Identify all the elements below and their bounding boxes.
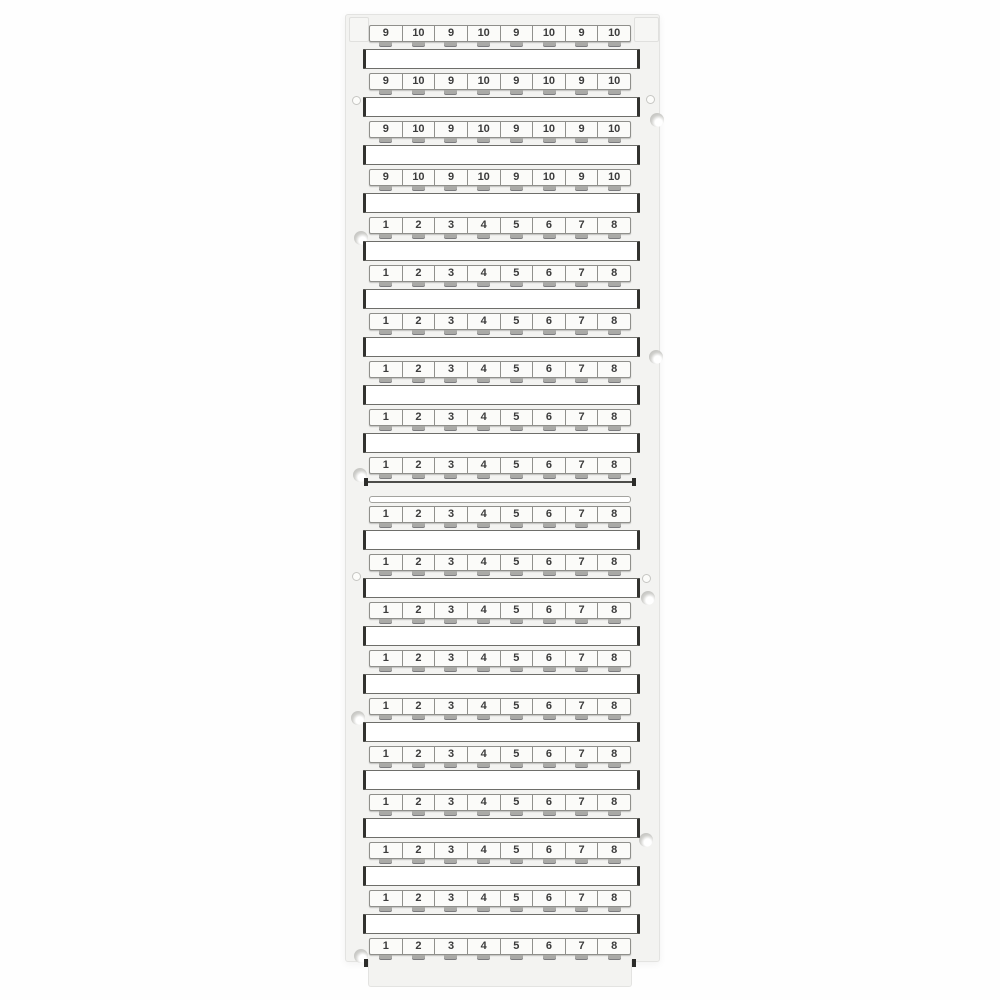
tag-bump-row <box>369 523 631 528</box>
tag-bump <box>467 138 500 143</box>
tag-bump <box>598 571 631 576</box>
tag-bump-mark <box>575 811 588 815</box>
marker-tag: 2 <box>403 507 436 522</box>
marker-tag-label: 2 <box>415 557 421 568</box>
marker-tag: 5 <box>501 651 534 666</box>
tag-bump-mark <box>543 426 556 430</box>
marker-row: 1 2 3 4 5 6 7 8 <box>346 602 659 650</box>
marker-tag: 6 <box>533 458 566 473</box>
marker-tag: 10 <box>598 26 630 41</box>
blank-carrier-strip <box>363 818 640 838</box>
marker-tag-label: 7 <box>579 268 585 279</box>
marker-tag-strip: 1 2 3 4 5 6 7 8 <box>369 794 631 811</box>
marker-tag-label: 2 <box>415 893 421 904</box>
marker-tag-label: 4 <box>481 364 487 375</box>
marker-tag-label: 7 <box>579 653 585 664</box>
marker-tag: 6 <box>533 266 566 281</box>
tag-bump-mark <box>379 426 392 430</box>
marker-tag: 5 <box>501 843 534 858</box>
tag-bump-mark <box>477 715 490 719</box>
tag-bump-mark <box>379 523 392 527</box>
marker-tag-label: 1 <box>383 701 389 712</box>
tag-bump-mark <box>412 763 425 767</box>
tag-bump <box>533 811 566 816</box>
marker-tag-label: 9 <box>513 172 519 183</box>
tag-bump-mark <box>510 523 523 527</box>
tag-bump-mark <box>608 426 621 430</box>
marker-tag-label: 6 <box>546 653 552 664</box>
marker-tag-label: 9 <box>579 76 585 87</box>
tag-bump-row <box>369 715 631 720</box>
marker-tag-label: 5 <box>513 845 519 856</box>
tag-bump <box>500 330 533 335</box>
tag-bump <box>435 763 468 768</box>
tag-bump-mark <box>510 571 523 575</box>
marker-tag-strip: 1 2 3 4 5 6 7 8 <box>369 506 631 523</box>
marker-tag: 6 <box>533 507 566 522</box>
marker-tag-label: 8 <box>611 220 617 231</box>
tag-bump-mark <box>608 763 621 767</box>
tag-bump <box>467 571 500 576</box>
tag-bump <box>435 715 468 720</box>
marker-tag: 4 <box>468 555 501 570</box>
tag-bump <box>402 474 435 479</box>
tag-bump <box>369 523 402 528</box>
marker-tag-label: 4 <box>481 749 487 760</box>
tag-bump <box>467 474 500 479</box>
marker-tag: 3 <box>435 218 468 233</box>
marker-tag: 2 <box>403 939 436 954</box>
tag-bump-row <box>369 282 631 287</box>
tag-bump-mark <box>379 571 392 575</box>
marker-tag: 10 <box>533 170 566 185</box>
tag-bump-mark <box>608 186 621 190</box>
tag-bump <box>467 523 500 528</box>
tag-bump <box>533 523 566 528</box>
tag-bump-mark <box>477 474 490 478</box>
marker-tag-strip: 1 2 3 4 5 6 7 8 <box>369 457 631 474</box>
marker-tag: 8 <box>598 458 630 473</box>
marker-tag: 7 <box>566 795 599 810</box>
marker-tag: 6 <box>533 603 566 618</box>
marker-tag-label: 9 <box>513 76 519 87</box>
marker-tag-label: 2 <box>415 316 421 327</box>
marker-tag: 4 <box>468 795 501 810</box>
marker-tag: 8 <box>598 362 630 377</box>
marker-tag: 8 <box>598 843 630 858</box>
marker-tag-label: 6 <box>546 364 552 375</box>
marker-tag: 9 <box>501 122 534 137</box>
tag-bump <box>500 571 533 576</box>
tag-bump-mark <box>543 186 556 190</box>
tag-bump <box>402 571 435 576</box>
marker-tag-label: 3 <box>448 653 454 664</box>
marker-tag: 2 <box>403 747 436 762</box>
marker-tag-label: 1 <box>383 220 389 231</box>
marker-tag-label: 5 <box>513 797 519 808</box>
marker-tag: 4 <box>468 939 501 954</box>
tag-bump <box>402 523 435 528</box>
tag-bump-mark <box>543 282 556 286</box>
tag-bump <box>566 282 599 287</box>
marker-tag-label: 3 <box>448 364 454 375</box>
marker-tag: 5 <box>501 795 534 810</box>
marker-tag-label: 6 <box>546 701 552 712</box>
marker-tag-label: 10 <box>608 28 620 39</box>
marker-tag: 8 <box>598 891 630 906</box>
tag-bump <box>533 667 566 672</box>
marker-tag-label: 3 <box>448 845 454 856</box>
tag-bump-mark <box>412 90 425 94</box>
tag-bump <box>435 186 468 191</box>
marker-tag: 5 <box>501 891 534 906</box>
marker-tag: 1 <box>370 458 403 473</box>
marker-tag: 3 <box>435 795 468 810</box>
tag-bump-mark <box>379 42 392 46</box>
marker-tag-label: 1 <box>383 845 389 856</box>
marker-tag-label: 2 <box>415 268 421 279</box>
tag-bump-mark <box>444 571 457 575</box>
tag-bump <box>467 763 500 768</box>
tag-bump <box>598 138 631 143</box>
marker-tag-label: 1 <box>383 268 389 279</box>
tag-bump-mark <box>543 138 556 142</box>
marker-tag: 10 <box>598 122 630 137</box>
tag-bump-mark <box>510 859 523 863</box>
tag-bump <box>533 330 566 335</box>
marker-tag: 4 <box>468 410 501 425</box>
tag-bump-mark <box>412 426 425 430</box>
blank-carrier-strip <box>363 193 640 213</box>
marker-tag-label: 4 <box>481 220 487 231</box>
tag-bump-mark <box>510 138 523 142</box>
tag-bump <box>467 811 500 816</box>
lower-card-section: 1 2 3 4 5 6 7 8 1 2 3 4 5 6 7 8 1 2 3 <box>346 496 659 964</box>
tag-bump-mark <box>444 42 457 46</box>
marker-tag: 10 <box>468 74 501 89</box>
tag-bump <box>435 619 468 624</box>
marker-tag-label: 9 <box>448 76 454 87</box>
tag-bump <box>598 42 631 47</box>
tag-bump-mark <box>379 859 392 863</box>
tag-bump-mark <box>412 523 425 527</box>
tag-bump-mark <box>510 619 523 623</box>
tag-bump-mark <box>412 715 425 719</box>
marker-tag-label: 4 <box>481 557 487 568</box>
tag-bump <box>467 234 500 239</box>
marker-tag-strip: 1 2 3 4 5 6 7 8 <box>369 265 631 282</box>
marker-tag-label: 5 <box>513 220 519 231</box>
tag-bump <box>500 474 533 479</box>
marker-tag-label: 7 <box>579 893 585 904</box>
tag-bump <box>598 90 631 95</box>
tag-bump-mark <box>510 426 523 430</box>
tag-bump-mark <box>608 811 621 815</box>
marker-tag: 8 <box>598 939 630 954</box>
marker-row: 1 2 3 4 5 6 7 8 <box>346 265 659 313</box>
tag-bump-mark <box>444 474 457 478</box>
marker-tag: 4 <box>468 314 501 329</box>
marker-tag: 9 <box>435 122 468 137</box>
tag-bump-mark <box>575 859 588 863</box>
marker-tag: 1 <box>370 651 403 666</box>
blank-carrier-strip <box>363 97 640 117</box>
tag-bump-mark <box>477 763 490 767</box>
marker-row: 1 2 3 4 5 6 7 8 <box>346 938 659 962</box>
marker-row: 1 2 3 4 5 6 7 8 <box>346 313 659 361</box>
tag-bump-mark <box>477 426 490 430</box>
tag-bump-mark <box>608 859 621 863</box>
tag-bump <box>566 42 599 47</box>
tag-bump-mark <box>543 571 556 575</box>
tag-bump-mark <box>379 763 392 767</box>
blank-carrier-strip <box>363 530 640 550</box>
tag-bump <box>566 667 599 672</box>
marker-tag: 1 <box>370 555 403 570</box>
tag-bump-mark <box>444 282 457 286</box>
marker-tag: 1 <box>370 266 403 281</box>
marker-tag-label: 9 <box>383 28 389 39</box>
tag-bump <box>435 523 468 528</box>
tag-bump-mark <box>379 138 392 142</box>
marker-row: 1 2 3 4 5 6 7 8 <box>346 650 659 698</box>
tag-bump-mark <box>477 907 490 911</box>
marker-tag-label: 1 <box>383 557 389 568</box>
tag-bump-mark <box>477 571 490 575</box>
tag-bump <box>533 378 566 383</box>
blank-carrier-strip <box>363 337 640 357</box>
marker-tag: 6 <box>533 218 566 233</box>
marker-tag: 2 <box>403 795 436 810</box>
marker-tag: 9 <box>435 170 468 185</box>
marker-tag-label: 2 <box>415 941 421 952</box>
marker-tag: 10 <box>468 170 501 185</box>
tag-bump-mark <box>379 811 392 815</box>
blank-carrier-strip <box>363 385 640 405</box>
marker-tag: 5 <box>501 747 534 762</box>
tag-bump-row <box>369 667 631 672</box>
tag-bump-mark <box>608 234 621 238</box>
tag-bump-mark <box>543 42 556 46</box>
tag-bump <box>402 426 435 431</box>
marker-tag: 1 <box>370 939 403 954</box>
marker-tag: 4 <box>468 747 501 762</box>
marker-tag-label: 3 <box>448 797 454 808</box>
marker-tag-label: 8 <box>611 316 617 327</box>
marker-tag: 8 <box>598 603 630 618</box>
marker-tag-label: 3 <box>448 509 454 520</box>
marker-tag-label: 10 <box>412 28 424 39</box>
tag-bump <box>598 763 631 768</box>
marker-tag: 9 <box>566 122 599 137</box>
tag-bump <box>369 426 402 431</box>
tag-bump-mark <box>575 186 588 190</box>
tag-bump <box>533 234 566 239</box>
blank-carrier-strip <box>363 866 640 886</box>
marker-tag-label: 3 <box>448 893 454 904</box>
tag-bump <box>598 811 631 816</box>
marker-tag-label: 3 <box>448 605 454 616</box>
tag-bump-mark <box>444 955 457 959</box>
marker-tag-label: 4 <box>481 701 487 712</box>
marker-tag-label: 3 <box>448 701 454 712</box>
tag-bump <box>402 42 435 47</box>
marker-tag: 9 <box>370 122 403 137</box>
tag-bump <box>369 619 402 624</box>
marker-tag: 2 <box>403 410 436 425</box>
marker-tag-label: 7 <box>579 749 585 760</box>
marker-tag-label: 2 <box>415 701 421 712</box>
tag-bump <box>467 90 500 95</box>
tag-bump-mark <box>575 378 588 382</box>
marker-tag: 2 <box>403 314 436 329</box>
tag-bump-mark <box>379 715 392 719</box>
blank-carrier-strip <box>363 914 640 934</box>
marker-tag-strip: 1 2 3 4 5 6 7 8 <box>369 938 631 955</box>
tag-bump-mark <box>477 378 490 382</box>
marker-tag-label: 2 <box>415 509 421 520</box>
tag-bump-mark <box>575 523 588 527</box>
marker-tag: 5 <box>501 507 534 522</box>
tag-bump-mark <box>412 667 425 671</box>
tag-bump <box>467 282 500 287</box>
tag-bump <box>467 907 500 912</box>
marker-tag-strip: 9 10 9 10 9 10 9 10 <box>369 169 631 186</box>
marker-tag: 3 <box>435 458 468 473</box>
marker-tag: 6 <box>533 795 566 810</box>
marker-tag-label: 10 <box>543 28 555 39</box>
marker-tag-label: 6 <box>546 557 552 568</box>
marker-tag: 2 <box>403 843 436 858</box>
marker-tag: 7 <box>566 891 599 906</box>
marker-tag-strip: 1 2 3 4 5 6 7 8 <box>369 650 631 667</box>
marker-tag-label: 9 <box>448 172 454 183</box>
marker-tag: 8 <box>598 699 630 714</box>
tag-bump-mark <box>444 90 457 94</box>
tag-bump-mark <box>575 474 588 478</box>
marker-tag: 4 <box>468 266 501 281</box>
marker-tag-strip: 1 2 3 4 5 6 7 8 <box>369 602 631 619</box>
tag-bump-mark <box>477 330 490 334</box>
marker-tag: 8 <box>598 747 630 762</box>
tag-bump-mark <box>608 667 621 671</box>
marker-tag: 4 <box>468 507 501 522</box>
marker-tag: 6 <box>533 939 566 954</box>
marker-tag-label: 2 <box>415 460 421 471</box>
tag-bump <box>369 811 402 816</box>
marker-row: 1 2 3 4 5 6 7 8 <box>346 842 659 890</box>
tag-bump-mark <box>543 763 556 767</box>
marker-tag: 8 <box>598 795 630 810</box>
marker-tag-strip: 1 2 3 4 5 6 7 8 <box>369 554 631 571</box>
tag-bump <box>435 378 468 383</box>
tag-bump-mark <box>543 330 556 334</box>
tag-bump <box>566 186 599 191</box>
blank-carrier-strip <box>363 49 640 69</box>
tag-bump-mark <box>575 667 588 671</box>
blank-carrier-strip <box>363 674 640 694</box>
tag-bump-mark <box>477 90 490 94</box>
marker-tag-strip: 1 2 3 4 5 6 7 8 <box>369 409 631 426</box>
marker-tag: 7 <box>566 218 599 233</box>
marker-tag: 2 <box>403 266 436 281</box>
tag-bump <box>369 763 402 768</box>
tag-bump <box>402 234 435 239</box>
marker-tag-strip: 9 10 9 10 9 10 9 10 <box>369 73 631 90</box>
marker-tag-label: 9 <box>579 28 585 39</box>
marker-tag-label: 3 <box>448 460 454 471</box>
marker-tag-label: 6 <box>546 220 552 231</box>
marker-tag: 8 <box>598 651 630 666</box>
tag-bump-mark <box>477 138 490 142</box>
marker-tag-label: 10 <box>543 124 555 135</box>
tag-bump-row <box>369 571 631 576</box>
marker-tag: 9 <box>566 170 599 185</box>
marker-tag-label: 6 <box>546 268 552 279</box>
tag-bump <box>533 186 566 191</box>
marker-row: 1 2 3 4 5 6 7 8 <box>346 746 659 794</box>
tag-bump-mark <box>444 763 457 767</box>
tag-bump-mark <box>412 955 425 959</box>
tag-bump <box>500 715 533 720</box>
marker-tag: 10 <box>533 26 566 41</box>
marker-tag-label: 1 <box>383 364 389 375</box>
tag-bump <box>369 667 402 672</box>
tag-bump-mark <box>412 859 425 863</box>
marker-tag-label: 10 <box>608 124 620 135</box>
marker-tag: 6 <box>533 747 566 762</box>
marker-tag-label: 10 <box>412 172 424 183</box>
tag-bump-mark <box>412 138 425 142</box>
tag-bump <box>402 90 435 95</box>
marker-tag: 4 <box>468 362 501 377</box>
tag-bump <box>500 523 533 528</box>
marker-tag-strip: 1 2 3 4 5 6 7 8 <box>369 361 631 378</box>
tag-bump-row <box>369 42 631 47</box>
tag-bump <box>369 138 402 143</box>
marker-tag: 5 <box>501 362 534 377</box>
marker-tag-label: 8 <box>611 797 617 808</box>
tag-bump-mark <box>444 426 457 430</box>
tag-bump-mark <box>379 330 392 334</box>
marker-tag: 1 <box>370 603 403 618</box>
marker-tag-label: 10 <box>543 76 555 87</box>
tag-bump <box>566 811 599 816</box>
marker-tag: 8 <box>598 314 630 329</box>
tag-bump <box>500 42 533 47</box>
tag-bump <box>566 426 599 431</box>
tag-bump-mark <box>379 474 392 478</box>
marker-tag: 1 <box>370 699 403 714</box>
marker-tag-label: 3 <box>448 412 454 423</box>
tag-bump <box>435 474 468 479</box>
tag-bump <box>533 907 566 912</box>
tag-bump-row <box>369 907 631 912</box>
marker-tag: 7 <box>566 410 599 425</box>
tag-bump <box>566 330 599 335</box>
marker-tag: 3 <box>435 555 468 570</box>
marker-tag: 9 <box>435 26 468 41</box>
tag-bump <box>467 186 500 191</box>
marker-tag: 9 <box>370 170 403 185</box>
tag-bump <box>566 474 599 479</box>
marker-tag-label: 5 <box>513 364 519 375</box>
tag-bump <box>533 282 566 287</box>
marker-tag-label: 5 <box>513 893 519 904</box>
tag-bump <box>402 186 435 191</box>
marker-tag-label: 1 <box>383 509 389 520</box>
blank-carrier-strip <box>363 626 640 646</box>
